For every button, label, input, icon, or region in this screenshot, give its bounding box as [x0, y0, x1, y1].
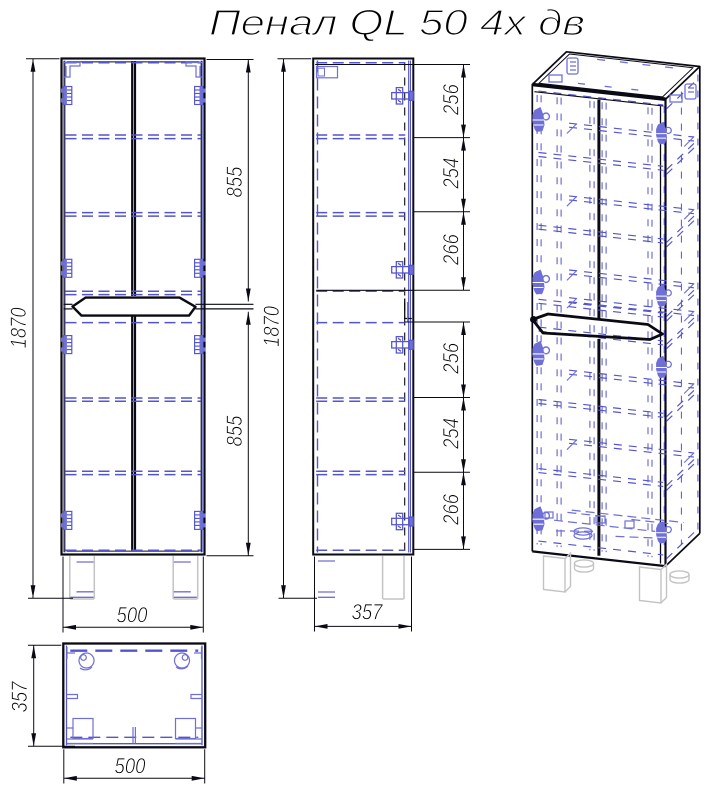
svg-text:500: 500	[117, 603, 149, 628]
svg-text:357: 357	[7, 681, 32, 713]
svg-text:855: 855	[222, 415, 247, 447]
svg-text:254: 254	[438, 158, 463, 190]
svg-text:Пенал QL 50 4х дв: Пенал QL 50 4х дв	[209, 2, 585, 43]
svg-text:500: 500	[115, 754, 147, 779]
svg-text:256: 256	[438, 83, 463, 115]
svg-text:357: 357	[352, 600, 384, 625]
svg-text:266: 266	[439, 493, 464, 525]
svg-text:266: 266	[439, 233, 464, 265]
svg-text:855: 855	[222, 166, 247, 198]
svg-text:1870: 1870	[259, 305, 284, 347]
svg-text:254: 254	[439, 418, 464, 450]
svg-text:1870: 1870	[6, 307, 31, 349]
svg-text:256: 256	[438, 342, 463, 374]
